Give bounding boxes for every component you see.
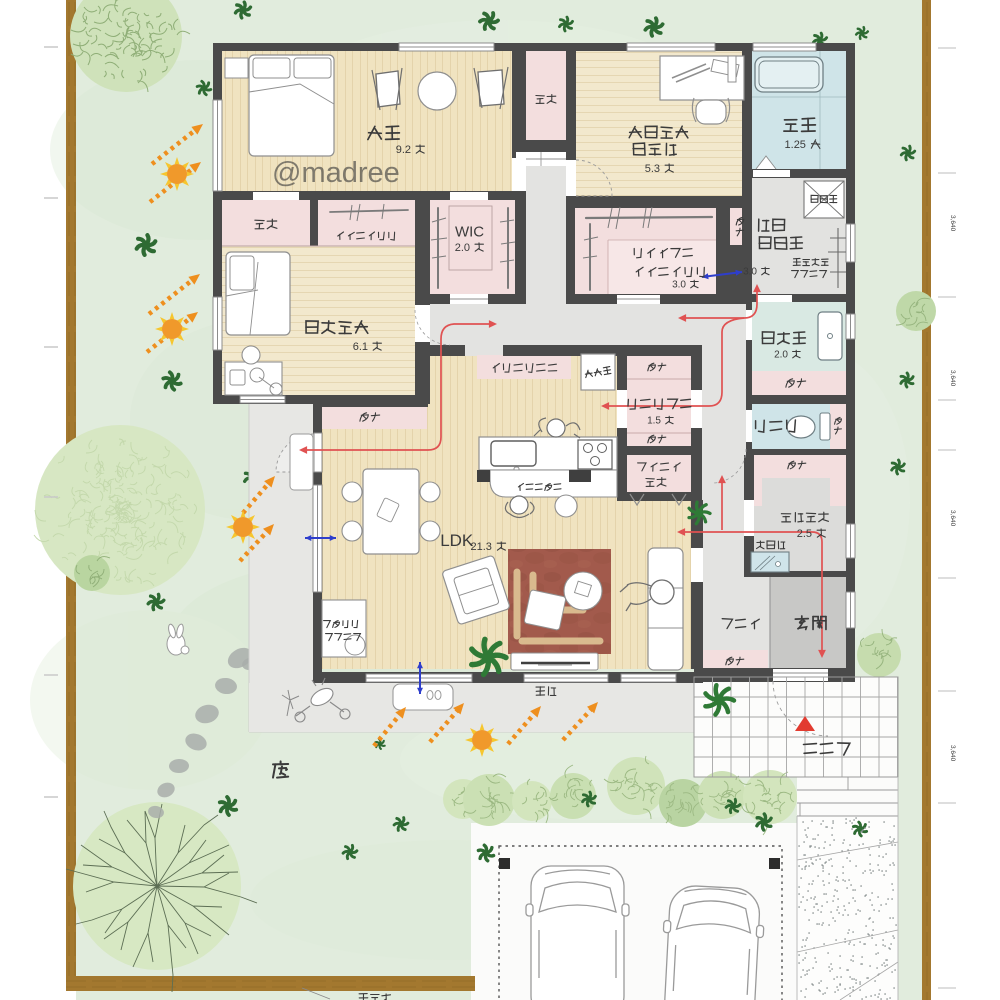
svg-text:2.0: 2.0 (455, 242, 470, 254)
svg-text:21.3: 21.3 (471, 541, 492, 553)
svg-text:LDK: LDK (440, 531, 474, 550)
svg-text:3,640: 3,640 (949, 215, 956, 232)
svg-text:@madree: @madree (272, 157, 400, 189)
svg-text:3,640: 3,640 (949, 370, 956, 387)
svg-text:2.5: 2.5 (797, 528, 812, 540)
svg-text:2.0: 2.0 (774, 350, 788, 361)
svg-text:6.1: 6.1 (353, 341, 368, 353)
svg-text:1.5: 1.5 (647, 416, 661, 427)
svg-text:3.0: 3.0 (672, 280, 686, 291)
svg-text:WIC: WIC (455, 223, 484, 240)
svg-text:3,640: 3,640 (949, 510, 956, 527)
svg-text:9.2: 9.2 (396, 144, 411, 156)
svg-text:5.3: 5.3 (645, 163, 660, 175)
svg-text:3,640: 3,640 (949, 745, 956, 762)
svg-text:3.0: 3.0 (743, 267, 757, 278)
svg-text:1.25: 1.25 (785, 139, 806, 151)
